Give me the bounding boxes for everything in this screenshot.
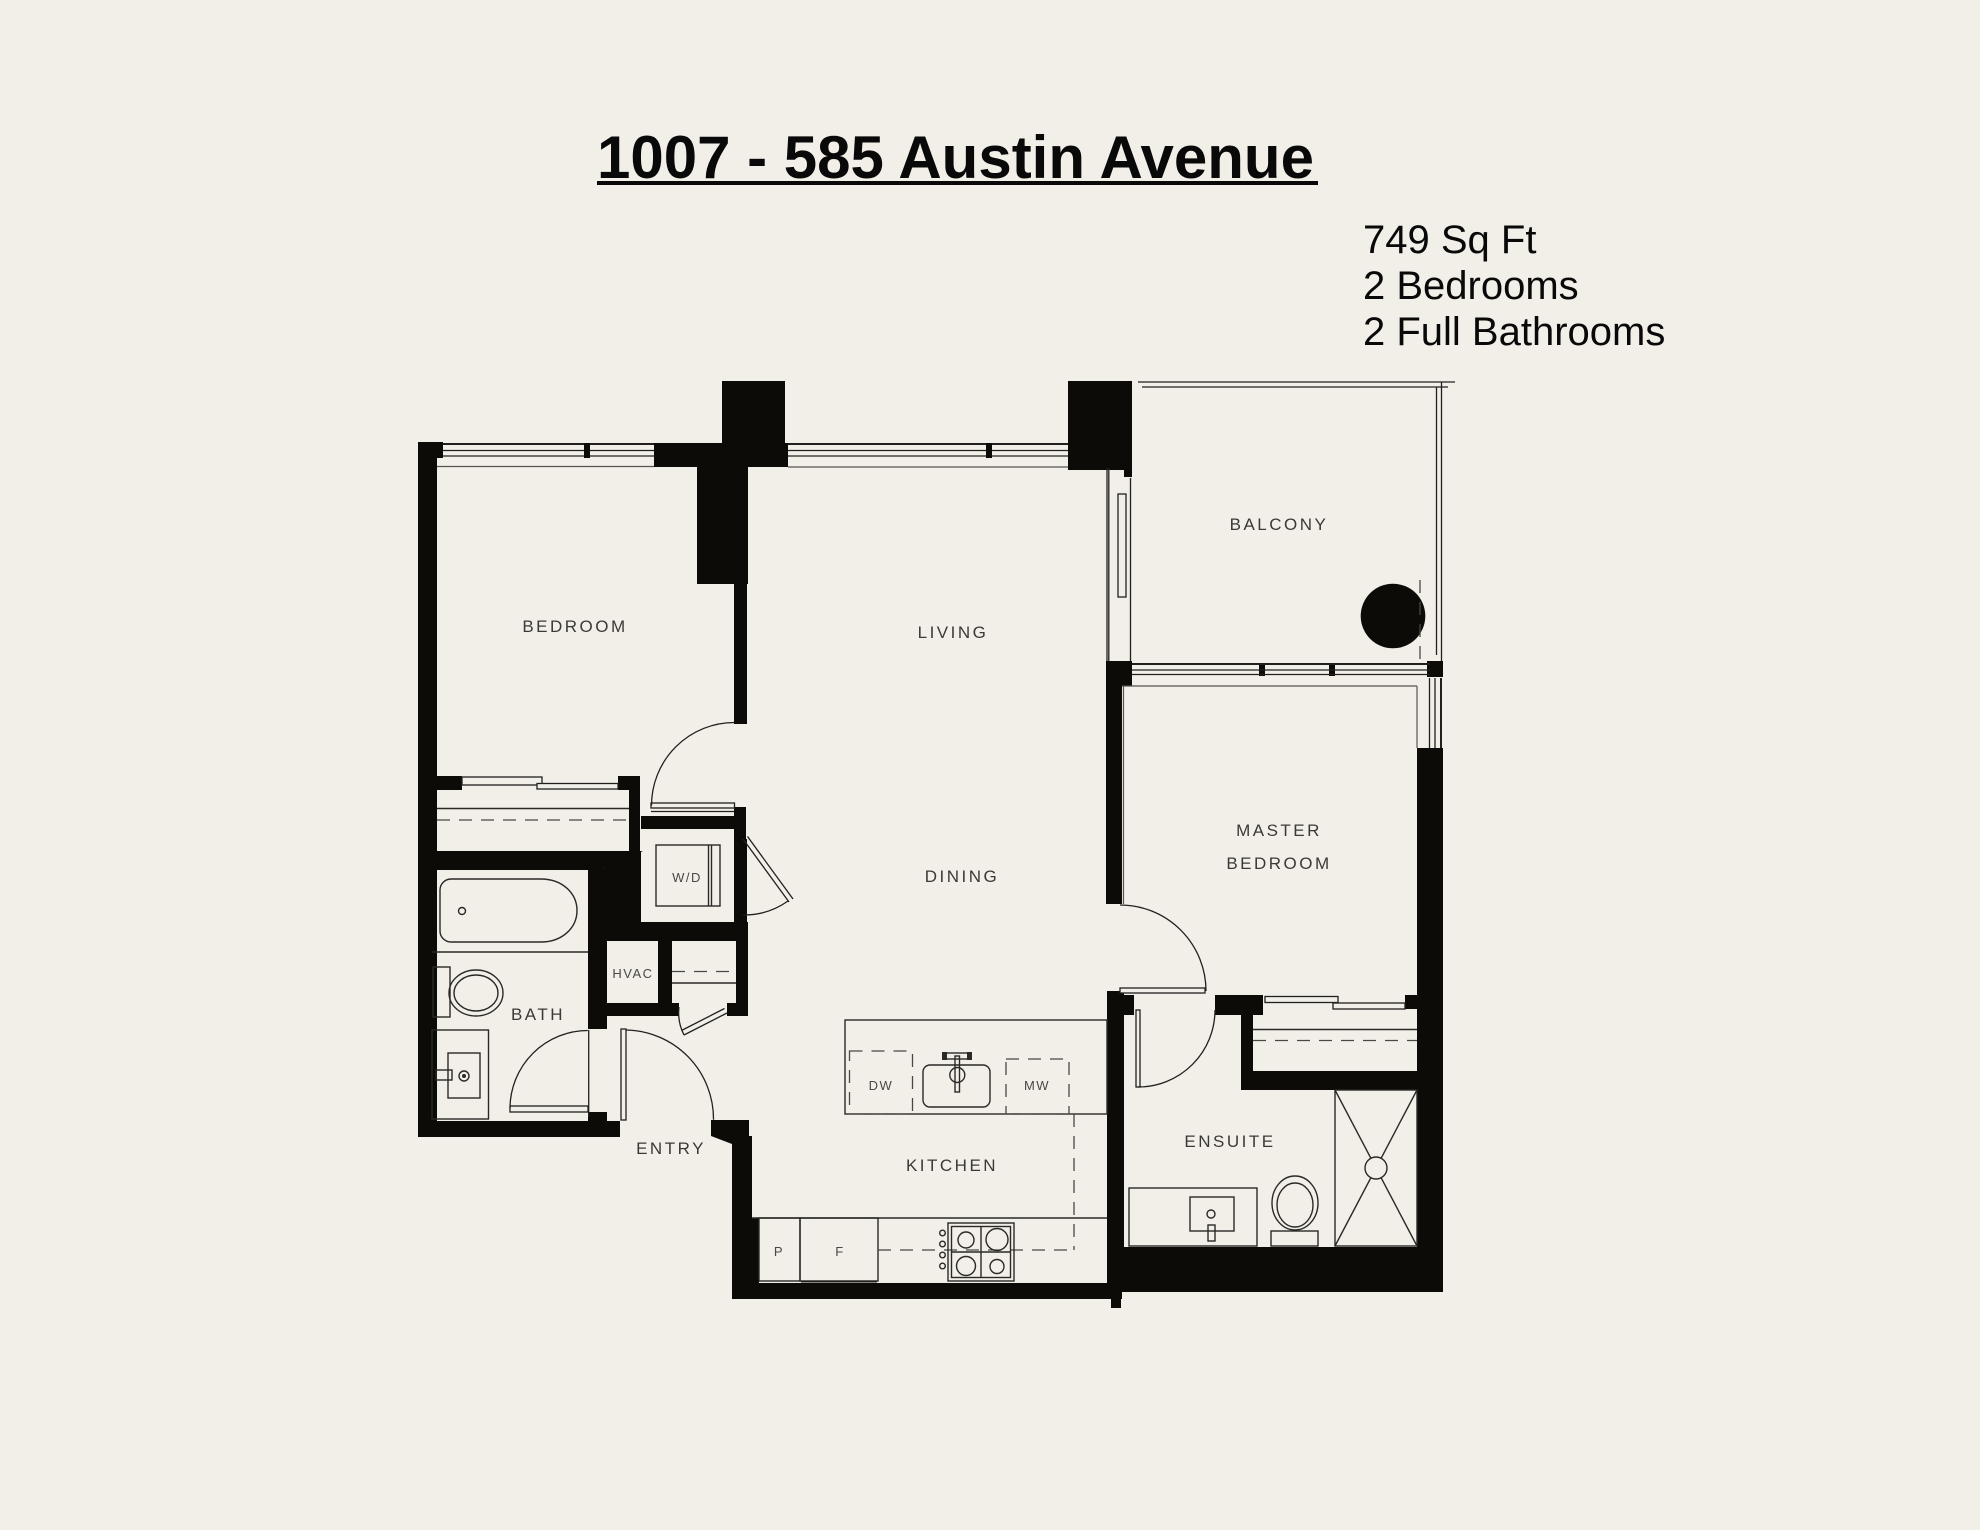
svg-text:MASTER: MASTER <box>1236 821 1322 840</box>
svg-text:DW: DW <box>869 1078 894 1093</box>
svg-text:BEDROOM: BEDROOM <box>522 617 627 636</box>
svg-text:ENTRY: ENTRY <box>636 1139 706 1158</box>
svg-text:1007 - 585 Austin Avenue: 1007 - 585 Austin Avenue <box>597 124 1314 191</box>
svg-text:2 Bedrooms: 2 Bedrooms <box>1363 264 1579 308</box>
svg-text:LIVING: LIVING <box>918 623 989 642</box>
svg-text:DINING: DINING <box>925 867 1000 886</box>
svg-text:F: F <box>835 1244 844 1259</box>
svg-text:BATH: BATH <box>511 1005 565 1024</box>
svg-text:ENSUITE: ENSUITE <box>1184 1132 1275 1151</box>
svg-text:HVAC: HVAC <box>612 966 653 981</box>
svg-text:MW: MW <box>1024 1078 1050 1093</box>
svg-text:KITCHEN: KITCHEN <box>906 1156 998 1175</box>
svg-text:P: P <box>774 1244 784 1259</box>
svg-text:749 Sq Ft: 749 Sq Ft <box>1363 218 1536 262</box>
svg-text:2 Full Bathrooms: 2 Full Bathrooms <box>1363 310 1665 354</box>
svg-text:W/D: W/D <box>672 870 702 885</box>
svg-text:BALCONY: BALCONY <box>1230 515 1329 534</box>
svg-text:BEDROOM: BEDROOM <box>1226 854 1331 873</box>
